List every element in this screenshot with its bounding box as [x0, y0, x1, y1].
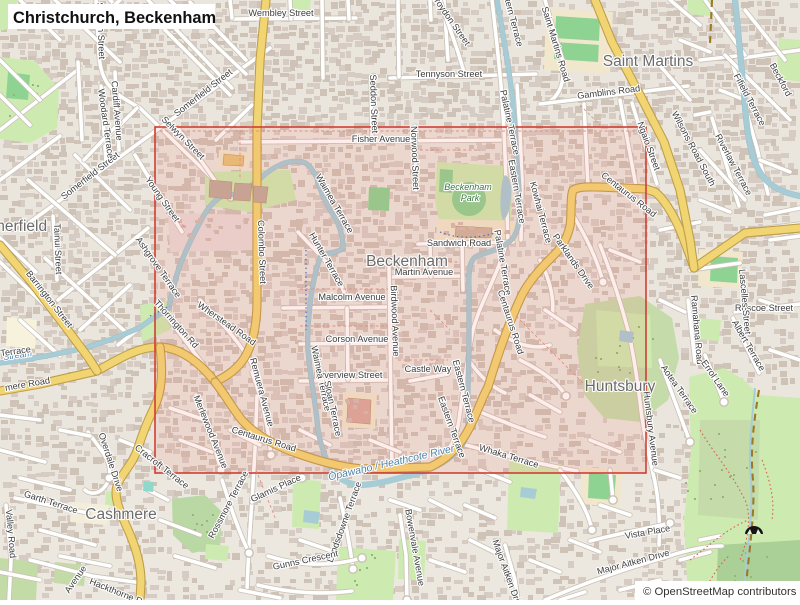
svg-text:Beckenham: Beckenham [444, 182, 492, 192]
svg-text:Tennyson Street: Tennyson Street [416, 69, 483, 79]
svg-text:Castle Way: Castle Way [405, 364, 452, 374]
svg-text:Martin Avenue: Martin Avenue [395, 267, 454, 277]
svg-text:Wembley Street: Wembley Street [248, 8, 314, 18]
svg-text:Park: Park [461, 193, 480, 203]
svg-text:Malcolm Avenue: Malcolm Avenue [318, 292, 385, 302]
svg-text:Fisher Avenue: Fisher Avenue [352, 134, 411, 144]
svg-text:Saint Martins: Saint Martins [603, 53, 694, 70]
svg-text:Seddon Street: Seddon Street [368, 74, 380, 134]
svg-text:Cashmere: Cashmere [85, 506, 157, 523]
svg-text:Christchurch, Beckenham: Christchurch, Beckenham [13, 9, 216, 27]
svg-text:Sandwich Road: Sandwich Road [427, 238, 491, 248]
svg-text:Somerfield: Somerfield [0, 218, 47, 235]
svg-text:Tainui Street: Tainui Street [52, 223, 64, 275]
svg-text:© OpenStreetMap contributors: © OpenStreetMap contributors [643, 586, 797, 598]
svg-text:Corson Avenue: Corson Avenue [326, 334, 389, 344]
